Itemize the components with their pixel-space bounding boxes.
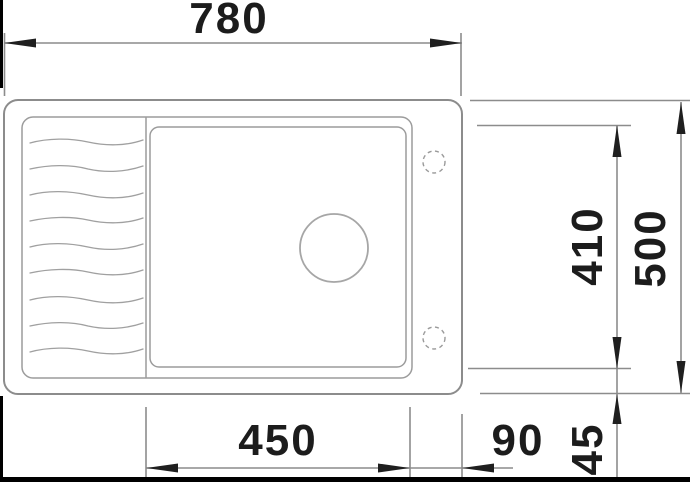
sink-technical-drawing: 780 500 410 450 90 45 <box>0 0 690 482</box>
dim-bowl-length-label: 450 <box>238 419 317 463</box>
dim-overall-width-label: 780 <box>189 0 268 41</box>
dim-overall-depth-label: 500 <box>629 208 673 287</box>
dim-bowl-depth-label: 410 <box>566 206 610 285</box>
arrow-410-bottom <box>613 337 622 369</box>
arrow-45-bottom <box>613 394 622 424</box>
sink-body <box>4 100 462 394</box>
arrow-410-top <box>613 125 622 157</box>
arrow-500-bottom <box>677 361 686 393</box>
arrow-780-left <box>4 39 36 48</box>
frame-border-bottom <box>0 477 690 482</box>
dim-front-offset-label: 45 <box>566 423 610 476</box>
dim-right-offset-label: 90 <box>492 419 545 463</box>
frame-border-left-top <box>0 0 3 88</box>
sink-outer-outline <box>4 100 462 394</box>
arrow-90-right <box>462 464 494 473</box>
arrow-500-top <box>677 102 686 134</box>
arrow-450-right <box>378 464 410 473</box>
arrow-780-right <box>430 39 462 48</box>
frame-border-left-bottom <box>0 396 3 482</box>
arrow-450-left <box>146 464 178 473</box>
